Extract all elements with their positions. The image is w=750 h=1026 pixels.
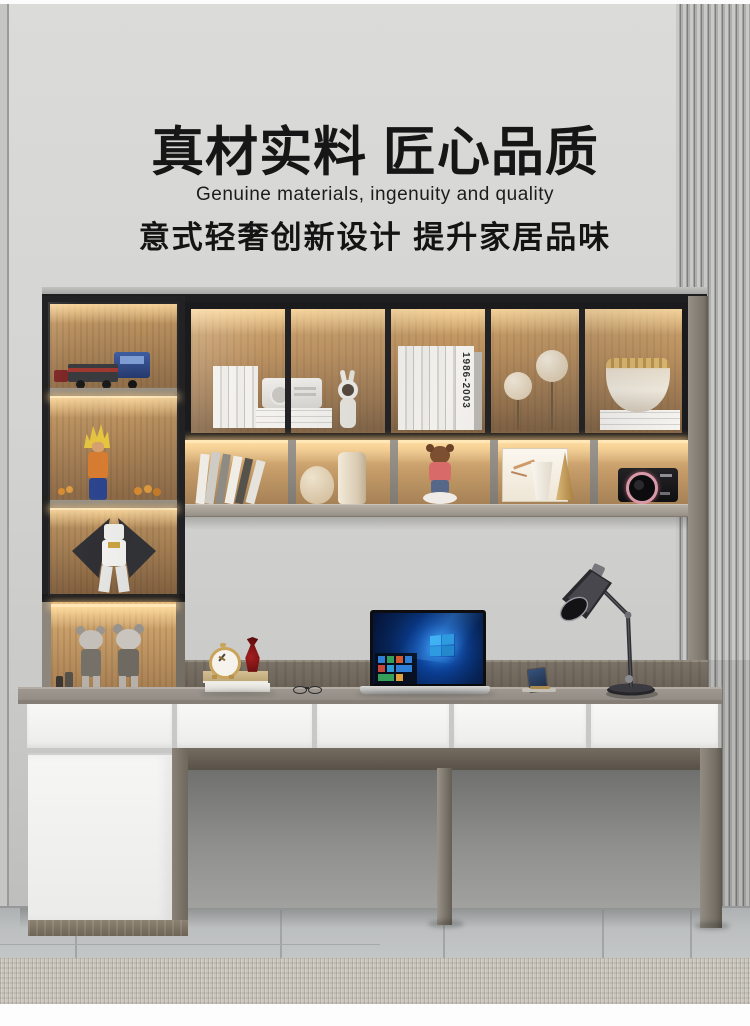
glass-door-cabinet-row: 1986-2003 [185,302,688,440]
door-frame-bottom [185,433,688,440]
windows-logo [430,634,455,657]
under-desk-cabinet-door [28,753,172,922]
shelf-divider [288,440,296,504]
drawer-5 [591,704,718,748]
shelf-underside-shadow [185,516,688,530]
door-frame [285,302,291,440]
eyeglasses [293,685,323,694]
laptop [360,610,490,694]
door-frame [185,302,191,440]
tile-joint-horizontal [0,944,380,945]
alarm-clock [208,645,238,679]
door-frame [485,302,491,440]
desk-leg [437,768,452,925]
cabinet-plinth [28,920,188,936]
kaws-figure [74,624,108,692]
laptop-shadow [356,691,496,697]
drawer-4 [454,704,586,748]
door-frame [579,302,585,440]
under-desk-cabinet-side [172,748,188,936]
door-frame [385,302,391,440]
open-shelf-row [185,440,688,516]
rug [0,958,750,1004]
drawer-3 [317,704,449,748]
camera [618,468,678,502]
door-frame-top [185,302,688,309]
cylinder-vase [338,452,366,504]
desk-lamp [540,563,660,700]
shelf-divider [490,440,498,504]
drawer-2 [177,704,312,748]
tall-display-cabinet [42,296,185,695]
start-menu [375,653,417,684]
panel-floor-shadow [694,922,730,930]
books-shadow [200,691,276,696]
kaws-figure [110,622,146,692]
top-white-strip [0,0,750,4]
bottom-white-strip [0,1004,750,1026]
glass-reflection [191,309,682,433]
round-vase [300,466,334,504]
shelf-divider [390,440,398,504]
hutch-side-panel [688,296,708,695]
cabinet-open-niche [42,602,185,695]
banner-subtitle-cn: 意式轻奢创新设计 提升家居品味 [0,212,750,257]
leaning-books [196,448,280,504]
desk-side-panel [700,748,722,928]
doll-figurine [421,446,459,504]
shelf-divider [590,440,598,504]
banner-title: 真材实料 匠心品质 [0,110,750,186]
laptop-screen [370,610,486,693]
leg-floor-shadow [428,920,464,928]
tall-cabinet-glass [48,302,179,596]
banner-subtitle-en: Genuine materials, ingenuity and quality [0,184,750,206]
drawer-1 [27,704,172,748]
product-banner-scene: 真材实料 匠心品质 Genuine materials, ingenuity a… [0,0,750,1026]
desk-apron [188,748,722,770]
